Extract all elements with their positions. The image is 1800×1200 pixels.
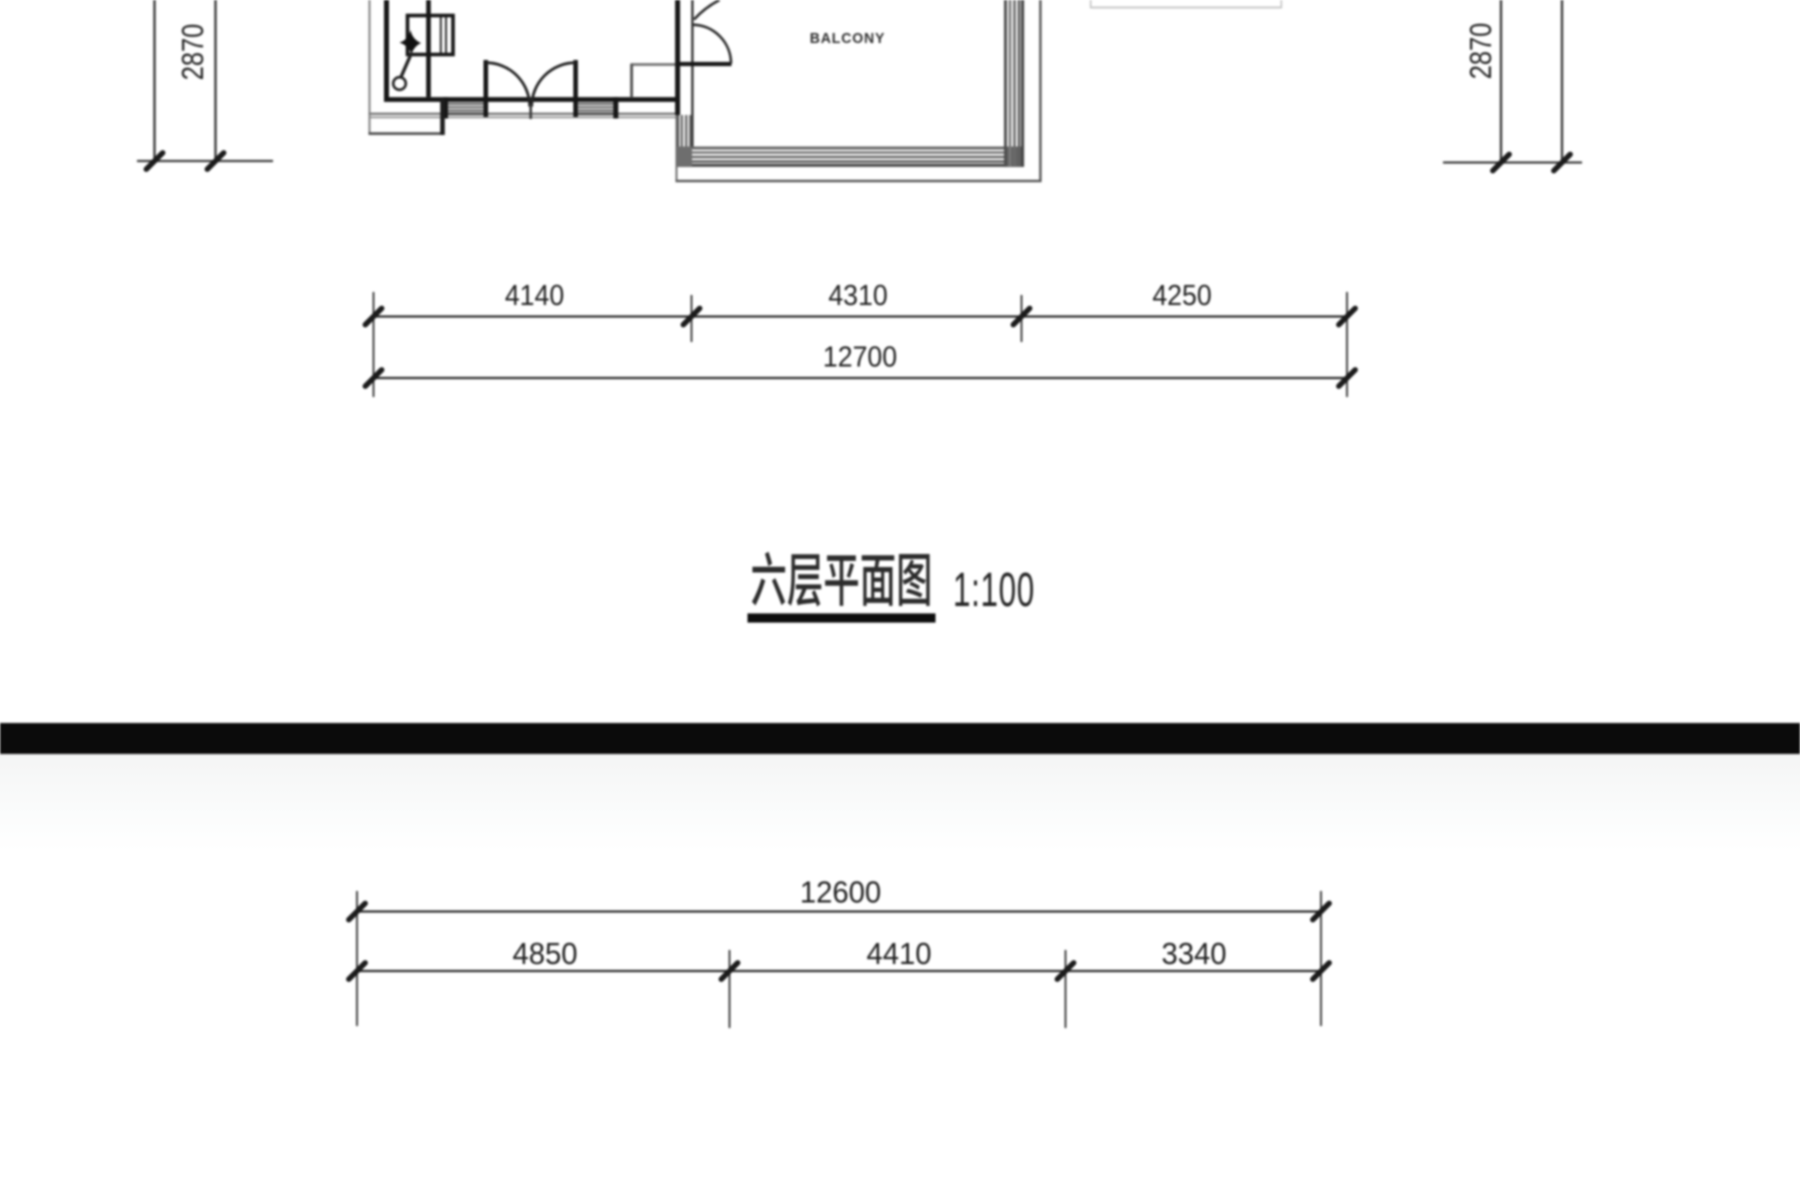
svg-text:2870: 2870 bbox=[176, 24, 211, 81]
svg-text:4140: 4140 bbox=[505, 279, 564, 311]
svg-text:4310: 4310 bbox=[828, 279, 887, 311]
svg-text:1:100: 1:100 bbox=[953, 562, 1035, 616]
svg-text:12700: 12700 bbox=[823, 340, 897, 372]
svg-text:4250: 4250 bbox=[1152, 279, 1211, 311]
svg-text:BALCONY: BALCONY bbox=[810, 31, 886, 47]
svg-text:12600: 12600 bbox=[800, 876, 881, 910]
svg-text:4410: 4410 bbox=[866, 937, 931, 971]
svg-text:2870: 2870 bbox=[1464, 23, 1499, 80]
svg-text:3340: 3340 bbox=[1161, 937, 1226, 971]
svg-text:4850: 4850 bbox=[512, 937, 577, 971]
